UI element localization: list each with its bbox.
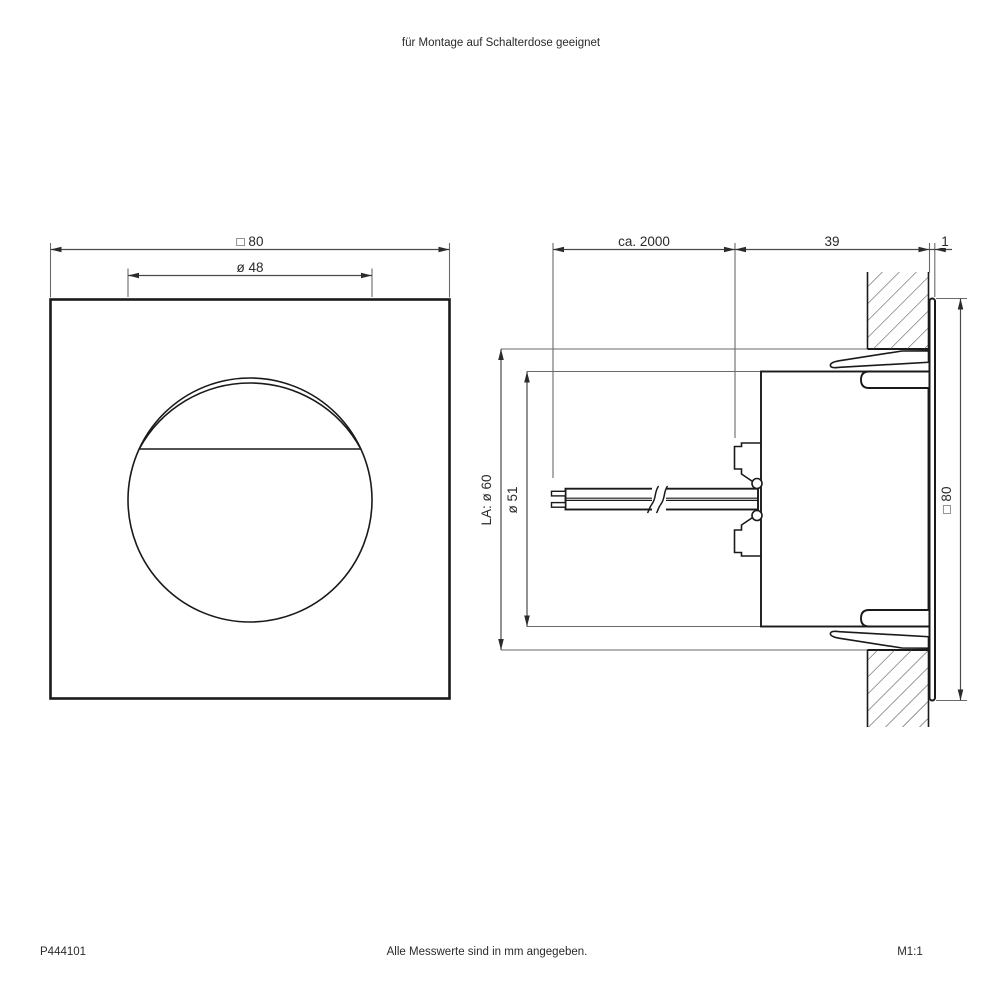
front-width-label: □ 80 xyxy=(237,234,264,249)
mounting-spring-bottom xyxy=(830,631,928,648)
front-lens-label: ø 48 xyxy=(236,260,263,275)
panel-thickness-label: 1 xyxy=(941,234,949,249)
footer: P444101 Alle Messwerte sind in mm angege… xyxy=(40,946,923,958)
arrowhead xyxy=(958,690,964,701)
arrowhead xyxy=(724,247,735,253)
article-number: P444101 xyxy=(40,946,86,958)
front-view: □ 80 ø 48 xyxy=(51,234,450,699)
arrowhead xyxy=(51,247,62,253)
front-faceplate-square xyxy=(51,300,450,699)
arrowhead xyxy=(361,273,372,279)
grommet-lobe-bottom xyxy=(752,511,762,521)
grommet-lobe-top xyxy=(752,479,762,489)
arrowhead xyxy=(439,247,450,253)
mounting-spring-top xyxy=(830,351,928,368)
arrowhead xyxy=(958,299,964,310)
arrowhead xyxy=(553,247,564,253)
scale-label: M1:1 xyxy=(897,946,923,958)
arrowhead xyxy=(498,639,504,650)
arrowhead xyxy=(128,273,139,279)
body-diameter-label: ø 51 xyxy=(505,486,520,513)
arrowhead xyxy=(524,372,530,383)
housing-body xyxy=(761,372,929,627)
hole-diameter-label: LA: ø 60 xyxy=(479,474,494,525)
cover-panel xyxy=(930,299,936,701)
technical-drawing-page: für Montage auf Schalterdose geeignet □ … xyxy=(0,0,1000,1000)
cable-length-label: ca. 2000 xyxy=(618,234,670,249)
arrowhead xyxy=(919,247,930,253)
measurement-note: Alle Messwerte sind in mm angegeben. xyxy=(387,946,588,958)
panel-height-label: □ 80 xyxy=(939,487,954,514)
front-collar-top xyxy=(861,372,929,389)
lens-inner-arc xyxy=(139,383,361,449)
wire-end-top xyxy=(552,491,566,496)
arrowhead xyxy=(524,616,530,627)
arrowhead xyxy=(735,247,746,253)
wall-section-top xyxy=(868,272,929,349)
lens-circle xyxy=(128,378,372,622)
arrowhead xyxy=(498,349,504,360)
wall-section-bottom xyxy=(868,650,929,727)
mounting-note: für Montage auf Schalterdose geeignet xyxy=(402,37,601,49)
front-collar-bottom xyxy=(861,610,929,627)
recess-depth-label: 39 xyxy=(824,234,839,249)
dimensional-drawing: für Montage auf Schalterdose geeignet □ … xyxy=(0,0,1000,1000)
side-view: ca. 2000 39 1 xyxy=(479,234,967,727)
wire-end-bottom xyxy=(552,503,566,508)
